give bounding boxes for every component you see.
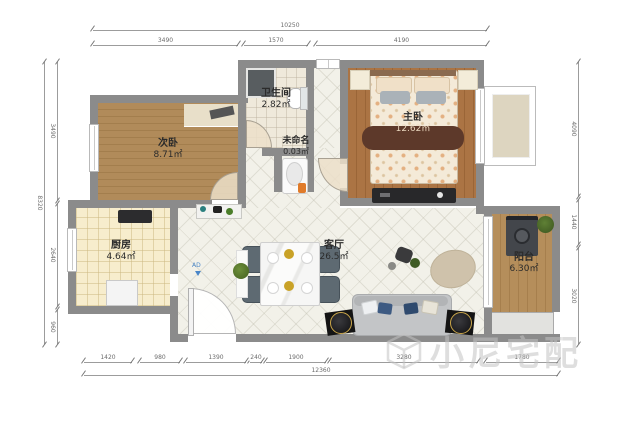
wall [90,95,248,103]
wall [238,60,246,208]
balcony-bay-window [490,312,554,336]
dim-bottom-seg5: 1900 [266,362,326,363]
dim-bottom-seg2: 980 [140,362,180,363]
balcony-plant [537,216,554,233]
dim-right-seg2: 1440 [578,200,579,244]
wall [68,306,178,314]
console-plant [200,206,206,212]
wall [262,148,314,156]
master-window [475,88,485,164]
plate-yellow [284,281,294,291]
dim-top-seg3: 4190 [316,45,487,46]
sofa-pillow [403,302,418,315]
bed-pillow [380,91,410,104]
plate [301,282,313,294]
entry-door-leaf [188,288,194,336]
washer-door [514,228,530,244]
dim-top-seg1: 3490 [93,45,238,46]
dim-bottom-seg4: 240 [250,362,262,363]
kitchen-window [67,228,77,272]
plate [267,252,279,264]
nightstand-left [350,70,370,90]
corridor-window [316,59,340,69]
wall [340,68,348,164]
bedroom2-window [89,124,99,172]
dim-right-seg1: 4090 [578,62,579,196]
dim-bottom-total: 12360 [84,375,558,376]
console-decor [213,206,222,213]
wall [170,200,178,274]
sofa-pillow [377,302,392,315]
plate [301,252,313,264]
speaker-right [450,312,472,334]
small-stool [388,262,396,270]
plate-yellow [284,249,294,259]
dim-left-seg2: 2640 [57,204,58,306]
dim-right-seg3: 3020 [578,248,579,344]
kitchen-appliance [106,280,138,306]
dim-top-total: 10250 [93,30,487,31]
bed-headboard [370,70,456,76]
sofa-pillow [421,300,439,316]
dim-top-seg2: 1570 [244,45,308,46]
dim-left-seg3: 960 [57,310,58,344]
dim-left-seg1: 3490 [57,62,58,200]
ad-duct-arrow-icon [195,271,201,276]
ad-duct-marker: AD [192,263,201,269]
wall [170,334,188,342]
master-bay-panel [492,94,530,158]
cooktop [118,210,152,223]
nightstand-right [458,70,478,90]
wall [348,60,484,68]
floorplan-canvas: AD 次卧 8.71㎡ 卫生间 2.82㎡ 未命名 0.03㎡ 主卧 12.62… [0,0,640,421]
wall [484,206,560,214]
dim-left-total: 8320 [44,62,45,344]
shower-stall [246,68,276,98]
small-plant [410,258,420,268]
laundry-basket [298,183,306,193]
dim-bottom-seg3: 1390 [186,362,246,363]
dim-bottom-seg1: 1420 [84,362,132,363]
tv-speaker-dot [437,192,443,198]
bed-pillow [416,91,446,104]
wall [68,200,212,208]
tv-soundbar [380,193,390,197]
plate [267,282,279,294]
dim-bottom-seg7: 1780 [486,362,558,363]
balcony-slider-window [483,216,493,308]
dim-bottom-seg6: 3280 [330,362,478,363]
console-plant [226,208,233,215]
speaker-left [330,312,352,334]
bed-runner-band [362,126,464,150]
wall [484,334,560,342]
corridor-floor [314,68,340,150]
toilet-tank [300,87,308,110]
potted-plant [233,263,249,279]
